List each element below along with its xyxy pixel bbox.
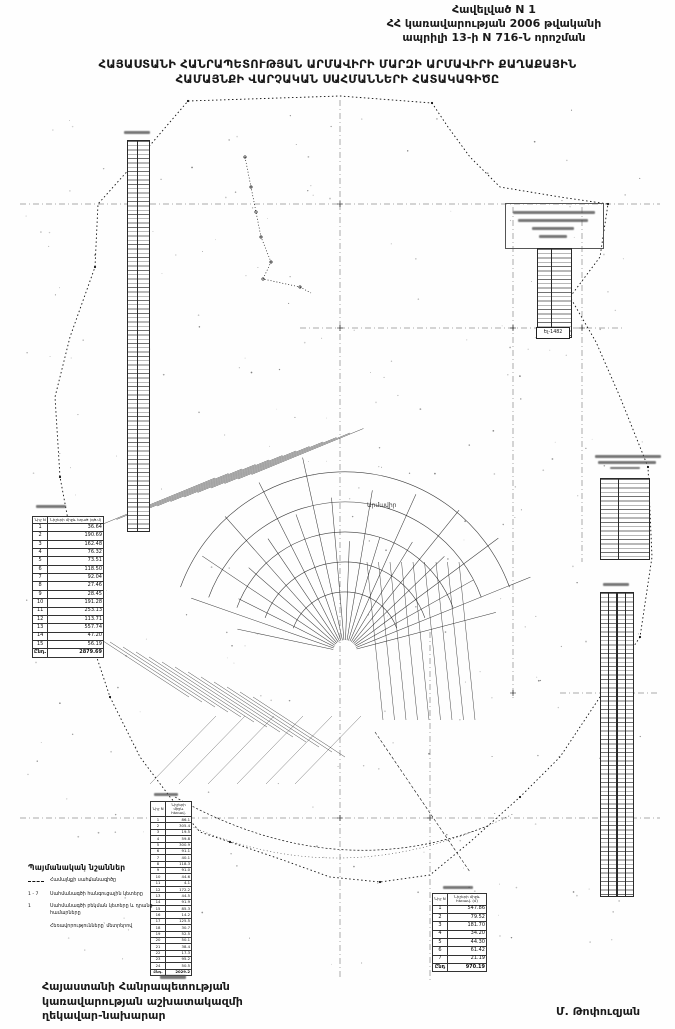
table-caption-smudge [154, 793, 178, 796]
annex-header: Հավելված N 1 ՀՀ կառավարության 2006 թվակա… [339, 3, 649, 45]
table-divider [625, 593, 626, 896]
signature-name: Մ. Թոփուզյան [556, 1005, 640, 1018]
legend-item-label: Սահմանագծի բեկման կետերը և դրանց համարնե… [50, 904, 158, 917]
table-caption-smudge [36, 505, 66, 508]
city-name-label: Արմավիր [367, 502, 397, 509]
map-note-stamp [505, 203, 604, 249]
annex-line-3: ապրիլի 13-ի N 716-Ն որոշման [339, 31, 649, 45]
annex-line-2: ՀՀ կառավարության 2006 թվականի [339, 17, 649, 31]
boundary-line-symbol [28, 878, 50, 885]
legend-item-turn-points: 1 Սահմանագծի բեկման կետերը և դրանց համար… [28, 904, 186, 917]
coordinate-column-caption-smudge [124, 131, 150, 134]
page-title: ՀԱՅԱՍՏԱՆԻ ՀԱՆՐԱՊԵՏՈՒԹՅԱՆ ԱՐՄԱՎԻՐԻ ՄԱՐԶԻ … [0, 57, 675, 87]
legend-item-label: Համայնքի սահմանագիծը [50, 878, 116, 884]
stamp-text-smudge [513, 211, 595, 214]
table-caption-smudge [443, 886, 473, 889]
coordinate-table-right-mid [600, 478, 650, 560]
footer-line-3: ղեկավար-նախարար [42, 1009, 243, 1024]
legend-item-label: Հեռավորությունները՝ մետրերով [50, 924, 132, 930]
legend-item-node-points: 1 - 7 Սահմանագծի հանգուցային կետերը [28, 892, 186, 898]
node-points-symbol: 1 - 7 [28, 892, 50, 898]
table-divider [137, 141, 138, 531]
legend-item-label: Սահմանագծի հանգուցային կետերը [50, 892, 143, 898]
stamp-text-smudge [539, 235, 567, 238]
table-caption-smudge [610, 467, 640, 469]
coordinate-table-right-column-b [617, 592, 634, 897]
distance-table-left: Նիշ NՆիշերի միջև եղած (գծ.մ)136.642190.6… [32, 516, 104, 658]
footer-line-2: կառավարության աշխատակազմի [42, 995, 243, 1010]
numbered-point-chain [244, 156, 311, 293]
ring-street-arcs [181, 472, 510, 628]
legend-item-boundary: Համայնքի սահմանագիծը [28, 878, 186, 885]
page-title-line-2: ՀԱՄԱՅՆՔԻ ՎԱՐՉԱԿԱՆ ՍԱՀՄԱՆՆԵՐԻ ՀԱՏԱԿԱԳԻԾԸ [0, 72, 675, 87]
coordinate-table-right-upper [537, 248, 572, 338]
seal-smudge [160, 975, 186, 979]
legend-item-distances: Հեռավորությունները՝ մետրերով [28, 924, 186, 930]
legend-title: Պայմանական նշաններ [28, 863, 186, 872]
footer-official-title: Հայաստանի Հանրապետության կառավարության ա… [42, 980, 243, 1024]
table-caption-smudge [598, 461, 656, 464]
coordinate-column-caption-smudge [603, 583, 629, 586]
footer-line-1: Հայաստանի Հանրապետության [42, 980, 243, 995]
stamp-text-smudge [518, 219, 588, 222]
table-caption-smudge [595, 455, 661, 458]
stamp-text-smudge [532, 227, 574, 230]
page-title-line-1: ՀԱՅԱՍՏԱՆԻ ՀԱՆՐԱՊԵՏՈՒԹՅԱՆ ԱՐՄԱՎԻՐԻ ՄԱՐԶԻ … [0, 57, 675, 72]
coordinate-table-right-column-a [600, 592, 617, 897]
scanned-document-page: Հավելված N 1 ՀՀ կառավարության 2006 թվակա… [0, 0, 675, 1029]
table-divider [608, 593, 609, 896]
table-divider [618, 479, 619, 559]
annex-line-1: Հավելված N 1 [339, 3, 649, 17]
turn-points-symbol: 1 [28, 904, 50, 910]
map-legend: Պայմանական նշաններ Համայնքի սահմանագիծը … [28, 863, 186, 937]
distance-table-bottom-center: Նիշ NՆիշերի միջև հեռավ. (մ)1547.86279.52… [432, 893, 487, 972]
table-divider [551, 249, 552, 337]
geodetic-point-box: Ել-1482 [536, 327, 570, 339]
coordinate-table-left-column [127, 140, 150, 532]
